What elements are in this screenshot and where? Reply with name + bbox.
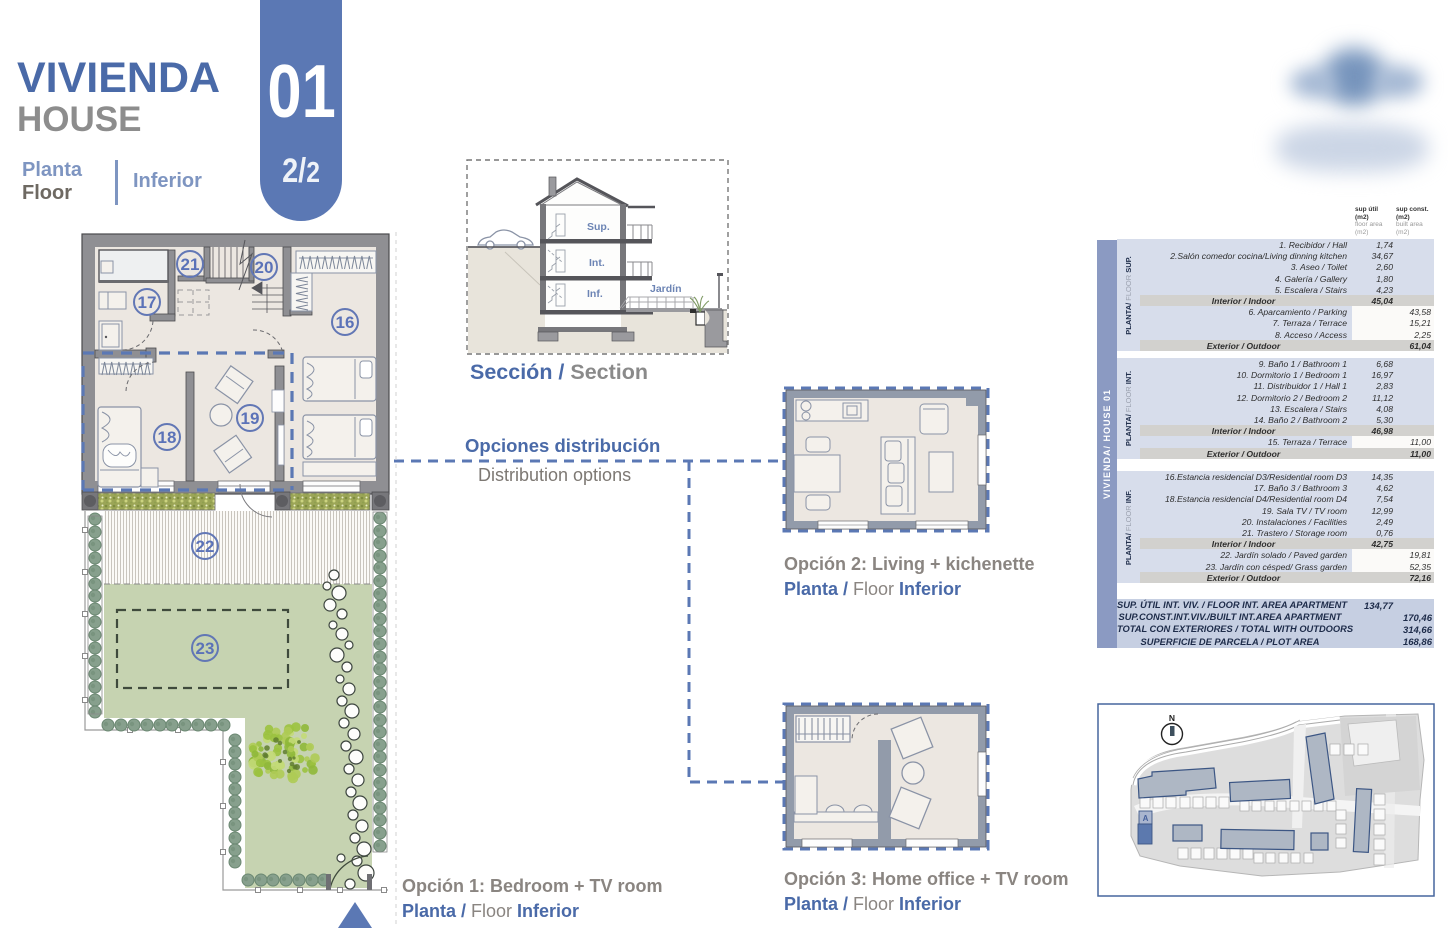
svg-text:20: 20 <box>255 258 274 277</box>
svg-text:Sup.: Sup. <box>587 221 610 233</box>
svg-text:A: A <box>1143 814 1149 823</box>
svg-text:Int.: Int. <box>589 257 605 269</box>
svg-text:19: 19 <box>241 409 260 428</box>
svg-text:18: 18 <box>158 428 177 447</box>
svg-text:Inf.: Inf. <box>587 288 603 300</box>
svg-text:21: 21 <box>181 255 200 274</box>
svg-text:16: 16 <box>336 313 355 332</box>
svg-text:N: N <box>1169 713 1175 723</box>
svg-text:17: 17 <box>138 293 157 312</box>
svg-text:Jardín: Jardín <box>650 283 682 295</box>
svg-text:22: 22 <box>196 537 215 556</box>
svg-text:23: 23 <box>196 639 215 658</box>
